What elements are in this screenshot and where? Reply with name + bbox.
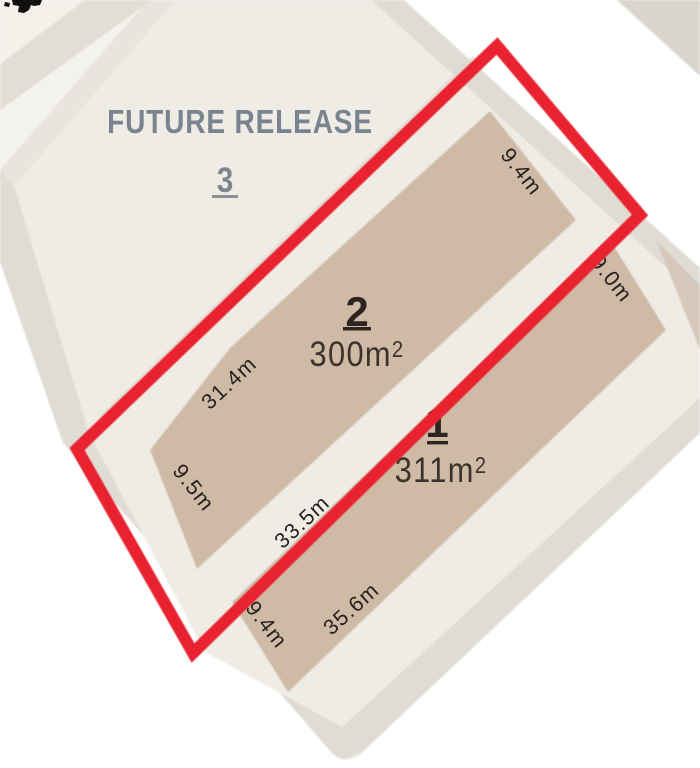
svg-text:311m2: 311m2 xyxy=(395,450,488,489)
svg-text:3: 3 xyxy=(217,161,234,200)
svg-text:FUTURE RELEASE: FUTURE RELEASE xyxy=(107,104,373,141)
svg-text:300m2: 300m2 xyxy=(310,334,405,373)
